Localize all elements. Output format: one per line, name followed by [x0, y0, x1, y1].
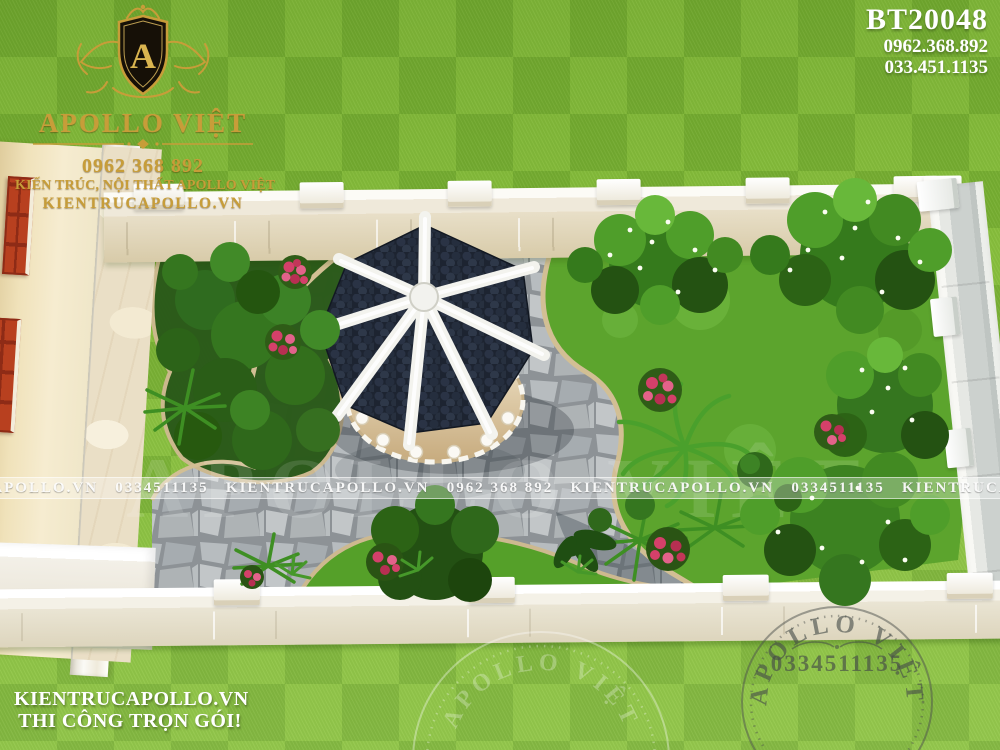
svg-text:APOLLO VIỆT: APOLLO VIỆT: [438, 649, 645, 732]
tree-plumeria-2: [750, 178, 952, 334]
contact-phone-2: 033.451.1135: [866, 57, 988, 79]
brand-divider: [28, 138, 258, 150]
gazebo: [310, 217, 544, 462]
contact-phone-1: 0962.368.892: [866, 36, 988, 58]
dense-tree-bottom: [371, 485, 499, 602]
brand-website: KIENTRUCAPOLLO.VN: [15, 195, 271, 214]
gazebo-finial: [410, 283, 438, 311]
footer-website: KIENTRUCAPOLLO.VN: [14, 688, 246, 710]
watermark-strip: KIENTRUCAPOLLO.VN 0334511135 KIENTRUCAPO…: [0, 477, 1000, 499]
brand-phone: 0962 368 892: [15, 155, 271, 178]
crest-monogram: A: [130, 36, 156, 76]
brand-crest: A: [68, 4, 218, 108]
brand-name: APOLLO VIỆT: [15, 109, 271, 137]
watermark-strip-text: KIENTRUCAPOLLO.VN 0334511135 KIENTRUCAPO…: [0, 480, 1000, 497]
footer-site-block: KIENTRUCAPOLLO.VN THI CÔNG TRỌN GÓI!: [14, 688, 246, 732]
shrub-mass-topleft: [156, 242, 340, 470]
stamp-ornament-dot: [835, 645, 839, 649]
stamp-phone: 0334511135: [771, 651, 903, 676]
ghost-stamp: APOLLO VIỆT: [400, 615, 690, 750]
brand-tagline: KIẾN TRÚC, NỘI THẤT APOLLO VIỆT: [15, 178, 271, 195]
tree-plumeria-1: [567, 195, 743, 325]
circular-stamp: APOLLO VIỆT 0334511135: [730, 595, 950, 750]
project-code-block: BT20048 0962.368.892 033.451.1135: [866, 4, 988, 79]
crown-dot: [141, 5, 145, 9]
brand-block: A APOLLO VIỆT 0962 368 892 KIẾN TRÚC, NỘ…: [15, 4, 271, 213]
project-code: BT20048: [866, 4, 988, 36]
footer-slogan: THI CÔNG TRỌN GÓI!: [14, 710, 246, 732]
aerial-garden-render: APOLLO VIỆT APOLLO VIỆT KIENTRUCAPOLLO.V…: [0, 0, 1000, 750]
